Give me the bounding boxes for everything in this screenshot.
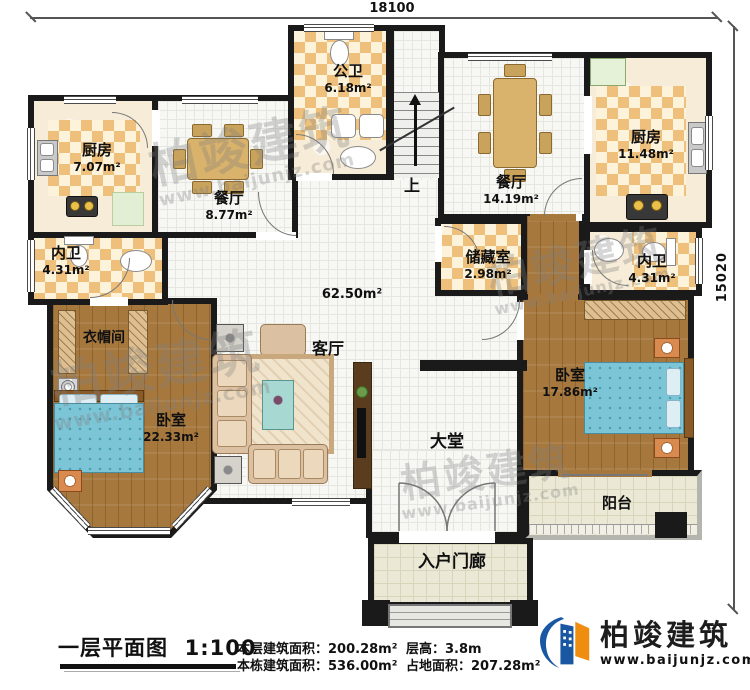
window [182, 96, 258, 104]
dining-table [493, 78, 537, 168]
dining-table [187, 138, 249, 180]
door-gap [528, 294, 578, 301]
kitchen-mat [112, 192, 144, 226]
wardrobe [58, 310, 76, 374]
dining-chair [539, 94, 552, 116]
dining-chair [173, 149, 186, 169]
nightstand [654, 438, 680, 458]
room-label-kitchen-left: 厨房7.07m² [73, 141, 120, 175]
dining-chair [192, 124, 212, 137]
wardrobe [584, 300, 686, 320]
window [27, 240, 35, 292]
dimension-top-line [30, 17, 718, 19]
door-gap [296, 173, 332, 181]
bed-pillow [666, 400, 681, 428]
bay-window [88, 527, 170, 535]
wardrobe [128, 310, 148, 374]
plant [356, 386, 368, 398]
pillar [362, 600, 390, 626]
title-underline-thin [64, 671, 240, 672]
stairs-arrow-head [409, 94, 421, 105]
dining-chair [504, 64, 526, 77]
window [64, 96, 116, 104]
sink-basin [691, 149, 704, 167]
dining-chair [539, 132, 552, 154]
room-label-bedroom-left: 卧室22.33m² [143, 411, 199, 445]
room-label-bedroom-right: 卧室17.86m² [542, 366, 598, 400]
dimension-right-label: 15020 [715, 252, 730, 302]
brand-url: www.baijunjz.com [600, 654, 750, 667]
pillar [655, 512, 687, 538]
stat-building-area: 本栋建筑面积：536.00m² [237, 658, 397, 675]
room-label-storage: 储藏室2.98m² [464, 248, 511, 282]
room-label-inner-bath-left: 内卫4.31m² [42, 244, 89, 278]
stat-footprint-area: 占地面积：207.28m² [406, 658, 540, 675]
dining-chair [478, 94, 491, 116]
room-corridor [521, 216, 585, 300]
stairs-arrow-stem [414, 104, 417, 166]
room-label-hall: 大堂 [430, 432, 464, 453]
room-label-dining-right: 餐厅14.19m² [483, 173, 539, 207]
stove-burner [633, 200, 644, 211]
coffee-table [262, 380, 294, 430]
window [304, 24, 374, 32]
door-gap [584, 96, 592, 154]
stove-burner [651, 200, 662, 211]
dining-chair [224, 124, 244, 137]
sofa-cushion [217, 390, 247, 417]
room-label-kitchen-right: 厨房11.48m² [618, 128, 674, 162]
side-table [214, 456, 242, 484]
brand-name: 柏竣建筑 [600, 621, 750, 650]
sink-basin [40, 159, 54, 172]
bed [54, 403, 144, 473]
window [695, 238, 703, 284]
sofa-cushion [253, 449, 276, 479]
stats-column-2: 层高：3.8m 占地面积：207.28m² [406, 641, 540, 675]
room-label-dining-left: 餐厅8.77m² [205, 189, 252, 223]
bed-headboard [684, 358, 694, 438]
dining-chair [478, 132, 491, 154]
stats-column-1: 本层建筑面积：200.28m² 本栋建筑面积：536.00m² [237, 641, 397, 675]
wash-basin [340, 146, 376, 169]
stove-burner [70, 201, 80, 211]
armchair [260, 324, 306, 356]
door-gap [435, 226, 442, 262]
double-entry-door [395, 479, 499, 533]
sofa-cushion [303, 449, 324, 479]
brand-logo: 柏竣建筑 www.baijunjz.com [540, 616, 750, 672]
sofa-cushion [278, 449, 301, 479]
door-gap [152, 110, 160, 146]
room-label-balcony: 阳台 [602, 494, 632, 513]
bed-pillow [666, 368, 681, 396]
room-label-cloakroom: 衣帽间 [83, 330, 125, 348]
title-underline [60, 664, 236, 669]
room-label-porch: 入户门廊 [418, 552, 486, 573]
window [468, 53, 552, 61]
dining-chair [250, 149, 263, 169]
sink-basin [691, 127, 704, 145]
door-gap [90, 297, 128, 306]
wall-stub [420, 360, 527, 371]
nightstand [58, 470, 82, 492]
room-label-living: 客厅 [312, 339, 344, 359]
nightstand [654, 338, 680, 358]
plan-title: 一层平面图 1:100 [58, 632, 256, 662]
room-label-living-area: 62.50m² [322, 287, 382, 303]
window [292, 498, 350, 506]
balcony-door-track [562, 474, 648, 476]
fridge [590, 58, 626, 86]
stove-burner [84, 201, 94, 211]
stat-storey-height: 层高：3.8m [406, 641, 540, 658]
window [27, 128, 35, 180]
wash-sink [359, 114, 384, 138]
side-table [216, 324, 244, 352]
porch-steps [388, 604, 512, 628]
window [705, 116, 713, 170]
stat-floor-area: 本层建筑面积：200.28m² [237, 641, 397, 658]
room-label-inner-bath-right: 内卫4.31m² [628, 252, 675, 286]
wash-sink [331, 114, 356, 138]
dimension-right-line [733, 26, 735, 610]
room-label-stairs-up: 上 [404, 176, 420, 196]
logo-icon [540, 616, 592, 672]
floor-plan: 18100 15020 [0, 0, 750, 690]
tv [357, 408, 366, 458]
room-label-public-bath: 公卫6.18m² [324, 62, 371, 96]
pillar [510, 600, 538, 626]
door-gap [584, 250, 592, 284]
sofa-cushion [217, 360, 247, 387]
dimension-top-label: 18100 [362, 1, 422, 16]
sofa-cushion [217, 420, 247, 447]
sink-basin [40, 143, 54, 156]
